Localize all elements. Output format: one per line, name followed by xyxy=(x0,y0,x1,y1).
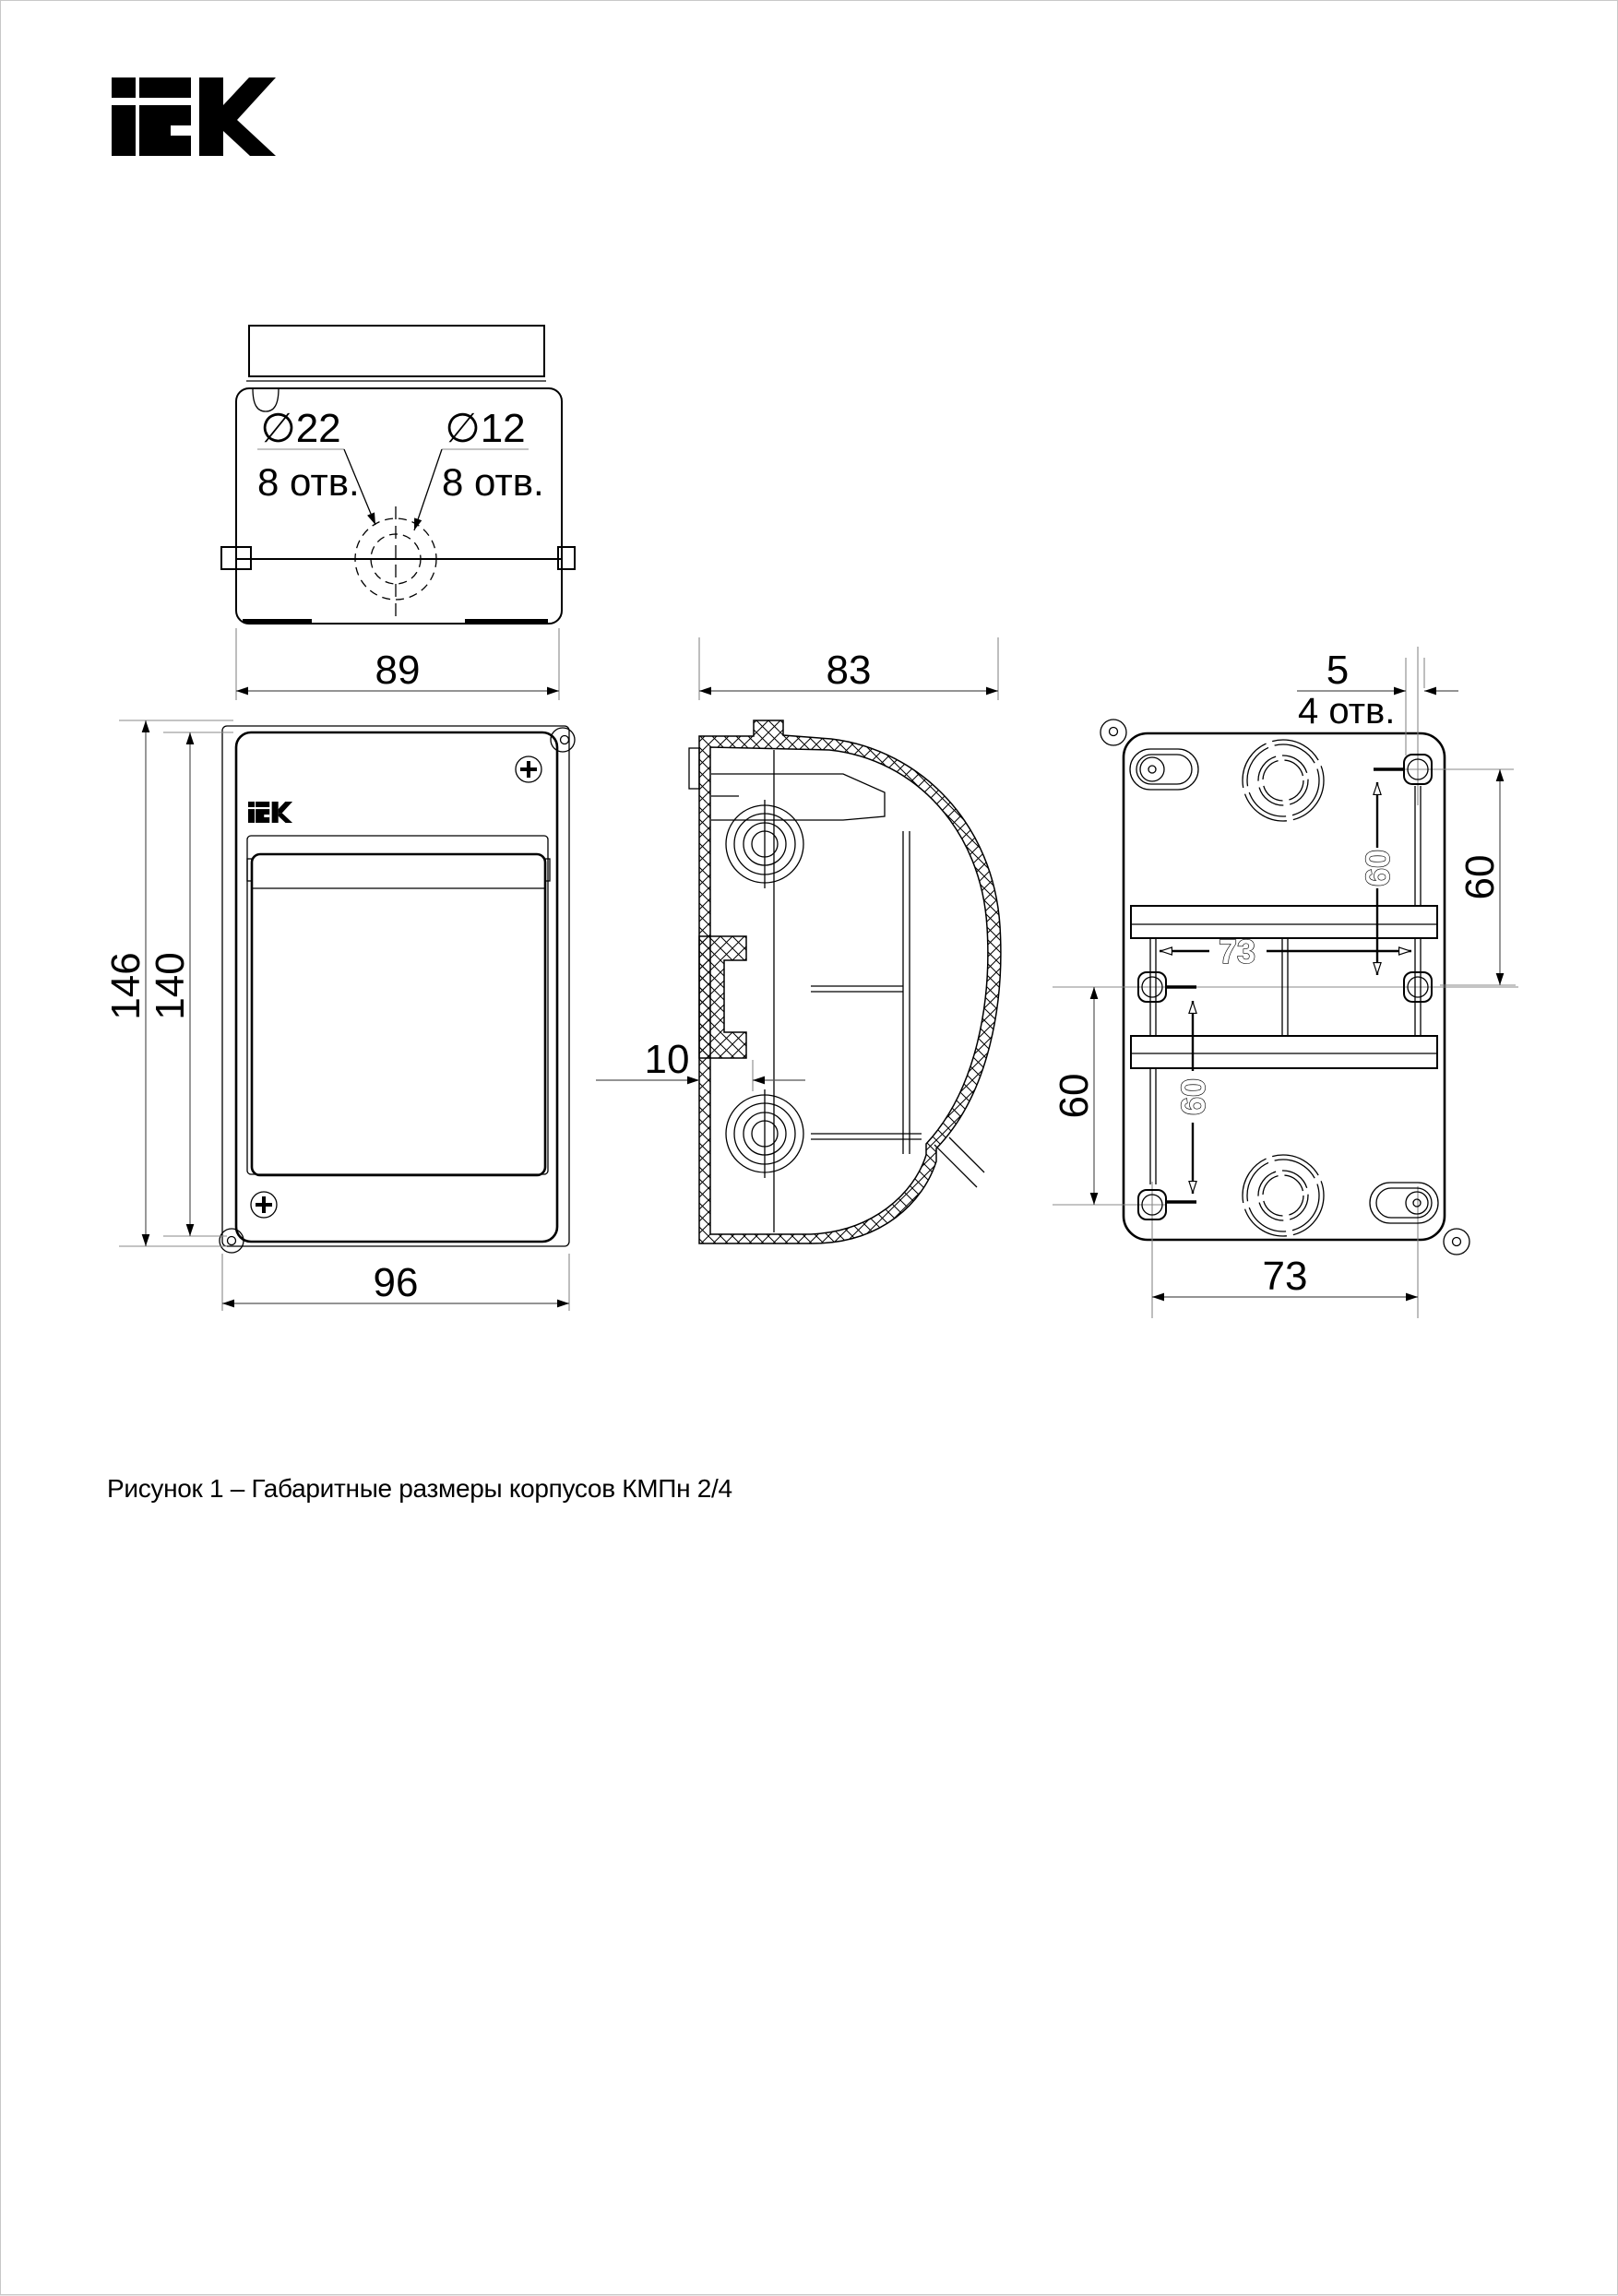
din-clip-bracket xyxy=(699,936,746,1058)
dim-89-text: 89 xyxy=(375,648,421,693)
side-view xyxy=(689,720,1001,1243)
door-panel xyxy=(252,854,545,1175)
door-frame xyxy=(247,836,548,1174)
dim-83-text: 83 xyxy=(827,648,872,693)
dim-right-60-text: 60 xyxy=(1457,855,1503,900)
dim-140-text: 140 xyxy=(148,952,193,1019)
dim-96-text: 96 xyxy=(374,1260,419,1305)
dim-width-96: 96 xyxy=(222,1254,569,1311)
top-view-lid xyxy=(249,326,544,376)
dim-height-140: 140 xyxy=(148,732,233,1236)
hole-count-22-label: 8 отв. xyxy=(257,460,360,504)
figure-caption: Рисунок 1 – Габаритные размеры корпусов … xyxy=(107,1474,732,1503)
screw-bottom-left xyxy=(251,1192,277,1218)
mount-ear-bottom-left xyxy=(220,1229,244,1253)
dim-inner-60-top-text: 60 xyxy=(1359,850,1397,886)
dim-10-text: 10 xyxy=(645,1037,690,1082)
dim-right-60: 60 xyxy=(1440,769,1516,985)
hole-count-12-label: 8 отв. xyxy=(442,460,544,504)
dim-inner-60-bottom-text: 60 xyxy=(1174,1078,1212,1115)
dim-inner-73-text: 73 xyxy=(1219,933,1255,970)
document-page: ∅22 8 отв. ∅12 8 отв. 89 xyxy=(0,0,1618,2295)
top-view: ∅22 8 отв. ∅12 8 отв. xyxy=(221,326,575,624)
hinge-detail xyxy=(934,1137,984,1187)
dim-left-60: 60 xyxy=(1052,987,1097,1205)
slot-lines xyxy=(1150,786,1421,1184)
dim-5-text: 5 xyxy=(1327,648,1349,693)
keyhole-slot-top-left xyxy=(1130,749,1198,790)
hole-dia-22-label: ∅22 xyxy=(260,406,340,451)
din-rail-top xyxy=(1131,906,1437,938)
dim-bottom-73: 73 xyxy=(1152,1254,1418,1299)
dim-146-text: 146 xyxy=(103,952,149,1019)
iek-logo xyxy=(112,77,276,156)
screw-boss-top xyxy=(726,800,803,888)
dim-depth-83: 83 xyxy=(699,637,998,700)
hole-dia-12-label: ∅12 xyxy=(445,406,525,451)
knockout-top xyxy=(1243,740,1324,821)
holes-count-text: 4 отв. xyxy=(1298,691,1395,732)
back-ear-bottom-right xyxy=(1444,1229,1469,1255)
din-rail-arm xyxy=(711,774,885,820)
back-ear-top-left xyxy=(1100,720,1126,745)
dim-slot-5: 5 4 отв. xyxy=(1297,648,1458,755)
screw-top-right xyxy=(516,756,541,782)
front-view xyxy=(220,726,575,1253)
screw-boss-bottom xyxy=(726,1089,803,1178)
dim-left-60-text: 60 xyxy=(1052,1074,1097,1119)
din-rail-bottom xyxy=(1131,1036,1437,1068)
dim-bottom-73-text: 73 xyxy=(1263,1254,1308,1299)
knockout-bottom xyxy=(1243,1155,1324,1236)
iek-logo-small xyxy=(248,802,292,823)
keyhole-slot-bottom-right xyxy=(1370,1183,1438,1223)
back-view xyxy=(1053,647,1518,1318)
dim-inner-60-top: 60 xyxy=(1359,769,1404,975)
dim-width-89: 89 xyxy=(236,628,559,700)
technical-drawing: ∅22 8 отв. ∅12 8 отв. 89 xyxy=(1,1,1618,2296)
dim-inner-60-bottom: 60 xyxy=(1165,987,1212,1202)
